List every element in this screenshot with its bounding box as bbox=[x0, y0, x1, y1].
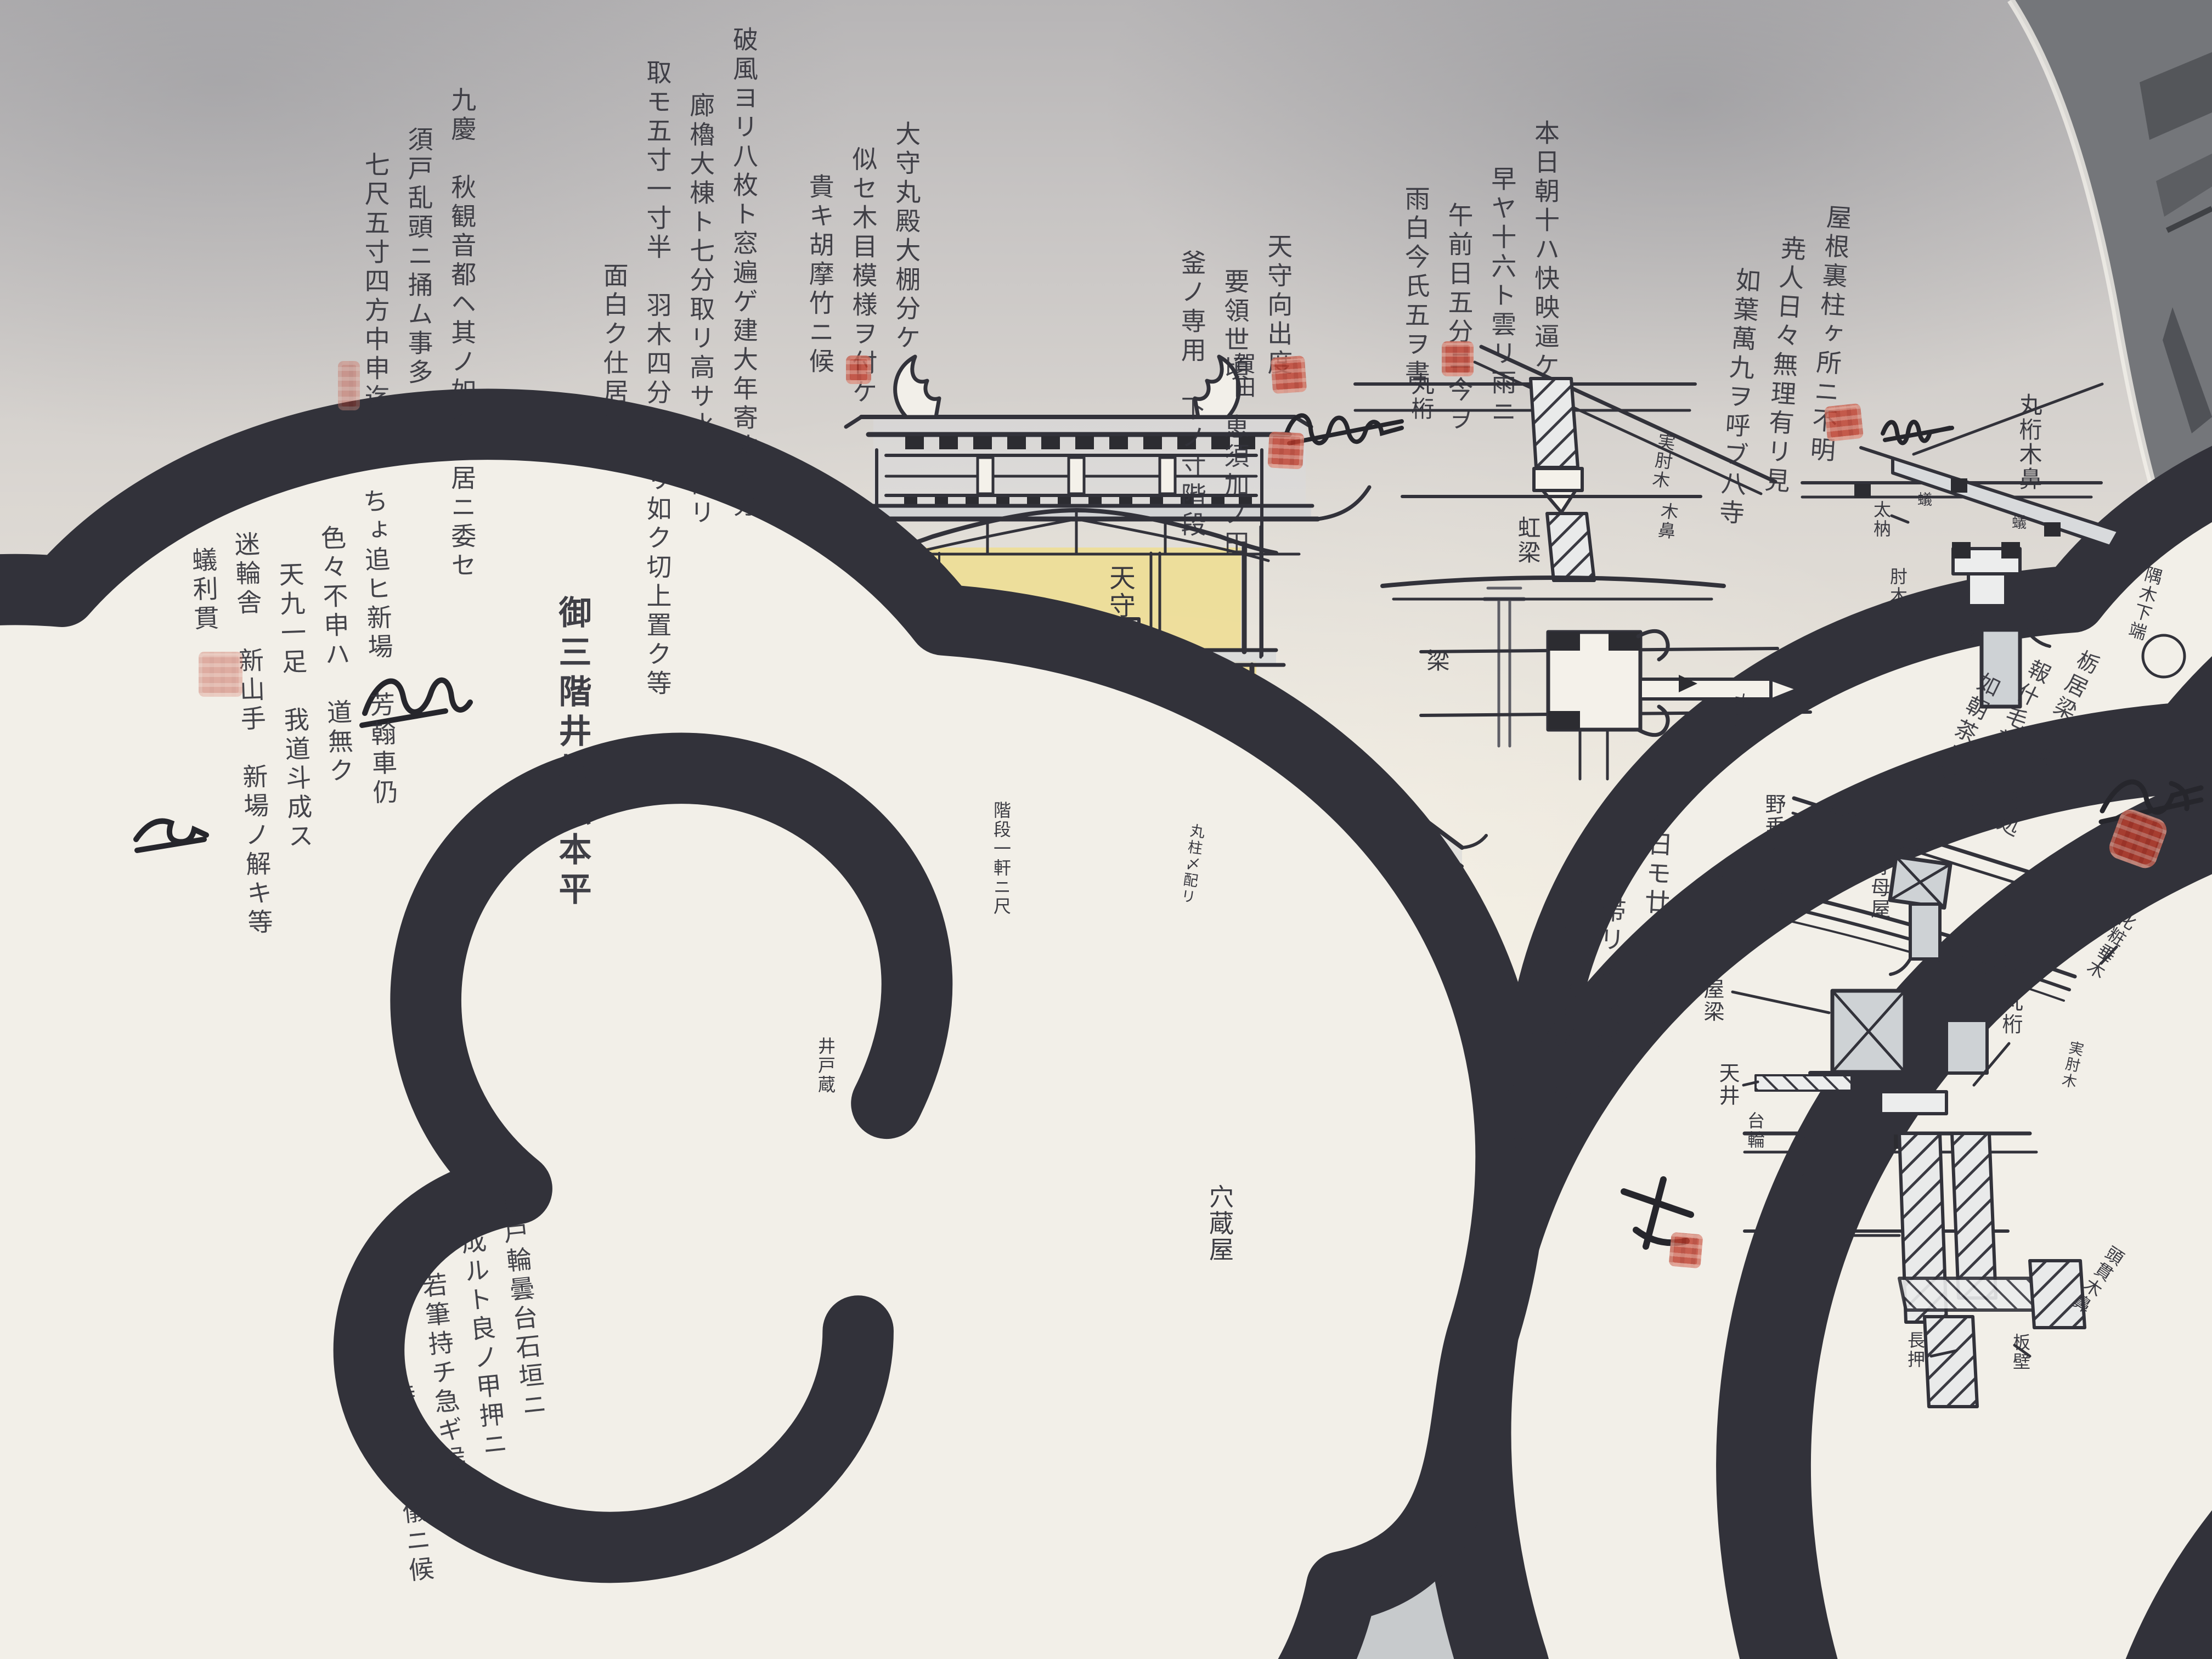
memo-column: 大守丸殿大棚分ケ bbox=[893, 121, 920, 408]
memo-column: 尭人日々無理有リ見 bbox=[1759, 234, 1806, 532]
label-ari: 蟻 bbox=[1912, 492, 1934, 508]
memo-column: 天九一足 我道斗成ス bbox=[276, 561, 316, 936]
red-seal bbox=[338, 361, 360, 410]
memo-column: 天守向出度 bbox=[1265, 233, 1292, 559]
label-hari: 梁 bbox=[1420, 648, 1453, 673]
stamp-name: 賀田 bbox=[1227, 352, 1259, 399]
label-kibana: 木鼻 bbox=[1652, 500, 1682, 542]
memo-left: ちょ追ヒ新場 芳翰車仍 色々不申ハ 道無ク 天九一足 我道斗成ス 迷輪舎 新山手… bbox=[187, 488, 402, 940]
label-toshihijiki: 通肘木 bbox=[1796, 1131, 1818, 1181]
memo-crew: 本日モ廿七名クラ 時間帯リノ撮影ヲ 委員芝城マツ同ジ名 解キ既ニ bbox=[1498, 794, 1674, 1193]
red-seal bbox=[1267, 431, 1304, 469]
drawing-title: 御三階井楼点本平 bbox=[549, 595, 596, 911]
label-hijiki: 肘木 bbox=[1885, 567, 1910, 606]
label-tenjo: 天井 bbox=[1713, 1062, 1743, 1107]
memo-column: 本日朝十ハ快映逼ケ bbox=[1532, 120, 1559, 435]
label-tenshukaku: 天守閣 bbox=[1101, 564, 1139, 648]
memo-column: 解キ既ニ bbox=[1498, 1068, 1531, 1186]
memo-column: 面白ク仕居候 bbox=[601, 262, 628, 699]
label-nomoya: 野母屋 bbox=[1864, 856, 1893, 920]
red-seal bbox=[1271, 356, 1307, 394]
red-seal bbox=[1668, 1232, 1703, 1269]
label-daito-c: 太斗 bbox=[1862, 1121, 1883, 1154]
memo-column: 委員芝城マツ同ジ名 bbox=[1541, 878, 1583, 1188]
red-seal bbox=[846, 356, 871, 384]
memo-column: 迷輪舎 新山手 新場ノ解キ等 bbox=[232, 531, 273, 938]
memo-column: 時間帯リノ撮影ヲ bbox=[1584, 838, 1629, 1190]
red-seal bbox=[199, 652, 242, 697]
memo-column: 九慶 秋観音都ヘ其ノ如ク軒居ニ委セ bbox=[449, 87, 476, 581]
memo-column: 取モ五寸一寸半 羽木四分ノ作リ如ク切上置ク等 bbox=[644, 59, 671, 699]
photographed-drawing: 九慶 秋観音都ヘ其ノ如ク軒居ニ委セ 須戸乱頭ニ捅ム事多ニ 七尺五寸四方中申迄ニ … bbox=[0, 0, 2212, 1659]
label-koyabari: 小屋梁 bbox=[1697, 956, 1728, 1023]
label-nodaruki: 野垂木 bbox=[1759, 793, 1789, 861]
memo-top-center: 破風ヨリ八枚ト窓遍ゲ建大年寄丈ヶ分 廊櫓大棟ト七分取リ高サ水雨停リ 取モ五寸一寸… bbox=[601, 26, 757, 699]
red-seal bbox=[1442, 341, 1474, 376]
memo-column: 廊櫓大棟ト七分取リ高サ水雨停リ bbox=[687, 92, 714, 699]
label-marugeta-kibana: 丸桁木鼻 bbox=[2012, 393, 2046, 492]
label-marugeta: 丸桁 bbox=[1404, 372, 1438, 421]
label-daito: 大斗 bbox=[2032, 588, 2057, 627]
label-cellar: 穴蔵屋 bbox=[1201, 1184, 1237, 1263]
label-marugeta-c: 丸桁 bbox=[1996, 991, 2026, 1036]
label-stair-note: 階段一軒ニ尺 bbox=[989, 801, 1014, 916]
memo-column: 午前日五分ニ今ヲ bbox=[1446, 202, 1472, 435]
memo-column: 早ヤ十六ト雲リ雨ニ bbox=[1489, 166, 1516, 435]
label-dairin: 台輪 bbox=[1742, 1111, 1768, 1150]
memo-column: 破風ヨリ八枚ト窓遍ゲ建大年寄丈ヶ分 bbox=[730, 26, 757, 699]
label-ari-2: 蟻 bbox=[2007, 515, 2028, 531]
memo-column: 貴キ胡摩竹ニ候 bbox=[806, 173, 833, 408]
memo-column: 要領世頃 恵須加ノ田 bbox=[1222, 268, 1249, 559]
label-kashiranuki: 頭貫 bbox=[1805, 1174, 1835, 1219]
memo-column: 釜ノ専用 下ノ寸階段 bbox=[1178, 250, 1205, 559]
memo-column: 須戸乱頭ニ捅ム事多ニ bbox=[405, 126, 432, 581]
memo-column: 色々不申ハ 道無ク bbox=[318, 524, 359, 935]
label-dabo: 太枘 bbox=[1869, 500, 1894, 539]
memo-roof: 屋根裏柱ヶ所ニ不明 尭人日々無理有リ見 如葉萬九ヲ呼ブ八寺 bbox=[1716, 198, 1852, 535]
label-well: 井戸蔵 bbox=[813, 1037, 838, 1094]
label-itakabe: 板壁 bbox=[2008, 1333, 2033, 1372]
red-seal bbox=[1824, 403, 1864, 442]
label-nageshi: 長押 bbox=[1903, 1331, 1928, 1369]
label-koryo: 虹梁 bbox=[1511, 516, 1544, 565]
